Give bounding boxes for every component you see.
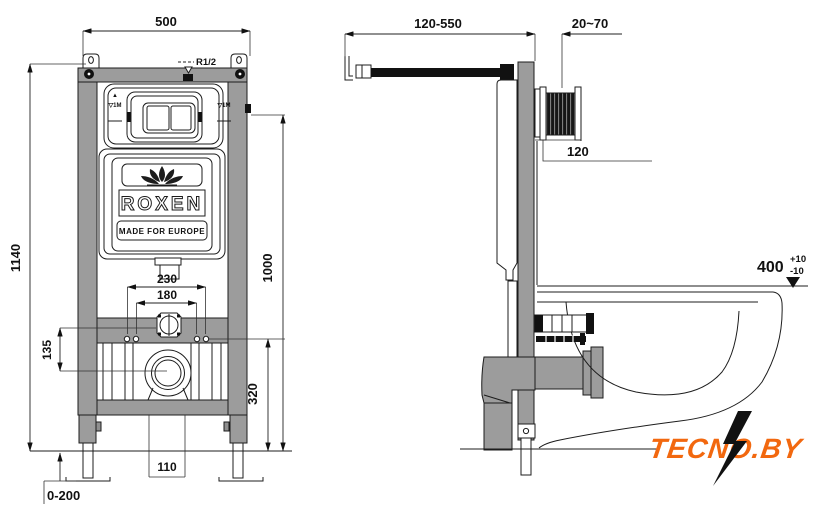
fitting-corner [177,315,180,318]
bowl-rim-front [537,292,782,303]
flush-button-small [171,106,191,130]
side-dimensions: 120-550 20~70 120 400 +10 -10 [345,16,806,288]
side-view: 120-550 20~70 120 400 +10 -10 [345,16,808,475]
tank-side [497,80,517,280]
strut [191,343,199,400]
cistern-tank: ROXEN MADE FOR EUROPE [99,149,225,279]
right-rail [228,68,247,415]
bracket-fitting [356,65,371,78]
outlet-bell [591,347,603,398]
meter-mark-left: ▽1M [108,103,122,109]
fixing-studs [535,313,594,345]
wall-anchor-inner [349,56,353,76]
leg-clip-right [224,422,229,431]
meter-mark-right: ▽1M [217,103,231,109]
dim-fixing-outer: 230 [157,272,177,286]
foot-tube-left [83,443,93,478]
flush-connector [535,315,593,332]
flush-plate-side [546,93,575,135]
leg-right [230,415,247,443]
installation-frame-drawing: ▲ ▽1M ▽1M ROXEN MADE FOR EURO [0,0,840,525]
tank-neck [155,258,181,265]
dim-frame-width: 500 [155,14,177,29]
fixing-stud [536,336,586,342]
plate-flange-right [575,87,581,140]
up-arrow-mark: ▲ [112,93,118,99]
dim-fixing-height: 320 [245,383,260,405]
bracket-clamp [500,64,514,81]
anchor-bolt-left-center [88,73,91,76]
fixing-hole [133,336,138,341]
top-rail [78,68,247,82]
fitting-corner [177,333,180,336]
subtitle-text: MADE FOR EUROPE [119,227,205,236]
soil-pipe-down [484,403,512,450]
dim-inlet-to-outlet: 135 [40,340,54,360]
outlet-pipe [535,357,585,389]
strut [125,343,133,400]
fixing-hole [124,336,129,341]
fixing-hole [194,336,199,341]
foot-tube-right [233,443,243,478]
dim-frame-height: 1140 [8,244,23,272]
dim-bowl-tol-plus: +10 [790,254,806,265]
inlet-port [183,74,193,81]
dim-bowl-tol-minus: -10 [790,266,804,277]
fitting-corner [158,315,161,318]
foot-clamp [518,424,535,438]
dim-bowl-height: 400 [757,259,784,276]
strut [212,343,221,400]
fixing-hole [203,336,208,341]
dim-wall-offset: 20~70 [572,16,609,31]
anchor-bolt-right-center [239,73,242,76]
flush-pipe [508,281,517,357]
dim-plate-height: 120 [567,144,589,159]
dim-bracket-depth: 120-550 [414,16,462,31]
dim-feet-adjust: 0-200 [47,488,80,503]
waste-outlet-bore [155,360,181,386]
plate-bracket [535,89,540,137]
panel-clip-right [199,112,203,122]
leg-left [79,415,96,443]
technical-drawing-page: ▲ ▽1M ▽1M ROXEN MADE FOR EURO [0,0,840,525]
leg-clip-left [96,422,101,431]
bracket-rod [371,68,503,77]
left-rail [78,68,97,415]
flush-button-large [147,106,169,130]
dim-outlet-gap: 110 [157,460,177,474]
cistern-side [497,80,517,357]
fitting-corner [158,333,161,336]
label-inlet-thread: R1/2 [196,57,216,68]
foot-tube-side [521,438,531,475]
plate-flange-left [540,87,546,140]
wall-bracket [345,56,514,81]
wall-section [535,87,581,285]
bottom-rail [97,400,228,415]
waste-piping [482,347,603,450]
meter-notch [245,104,251,113]
front-view: ▲ ▽1M ▽1M ROXEN MADE FOR EURO [8,14,292,504]
panel-clip-left [127,112,131,122]
strut [103,343,112,400]
brand-text: ROXEN [121,194,204,215]
dim-meter-mark-height: 1000 [260,254,275,283]
outlet-collar [583,351,591,395]
dim-fixing-inner: 180 [157,288,177,302]
